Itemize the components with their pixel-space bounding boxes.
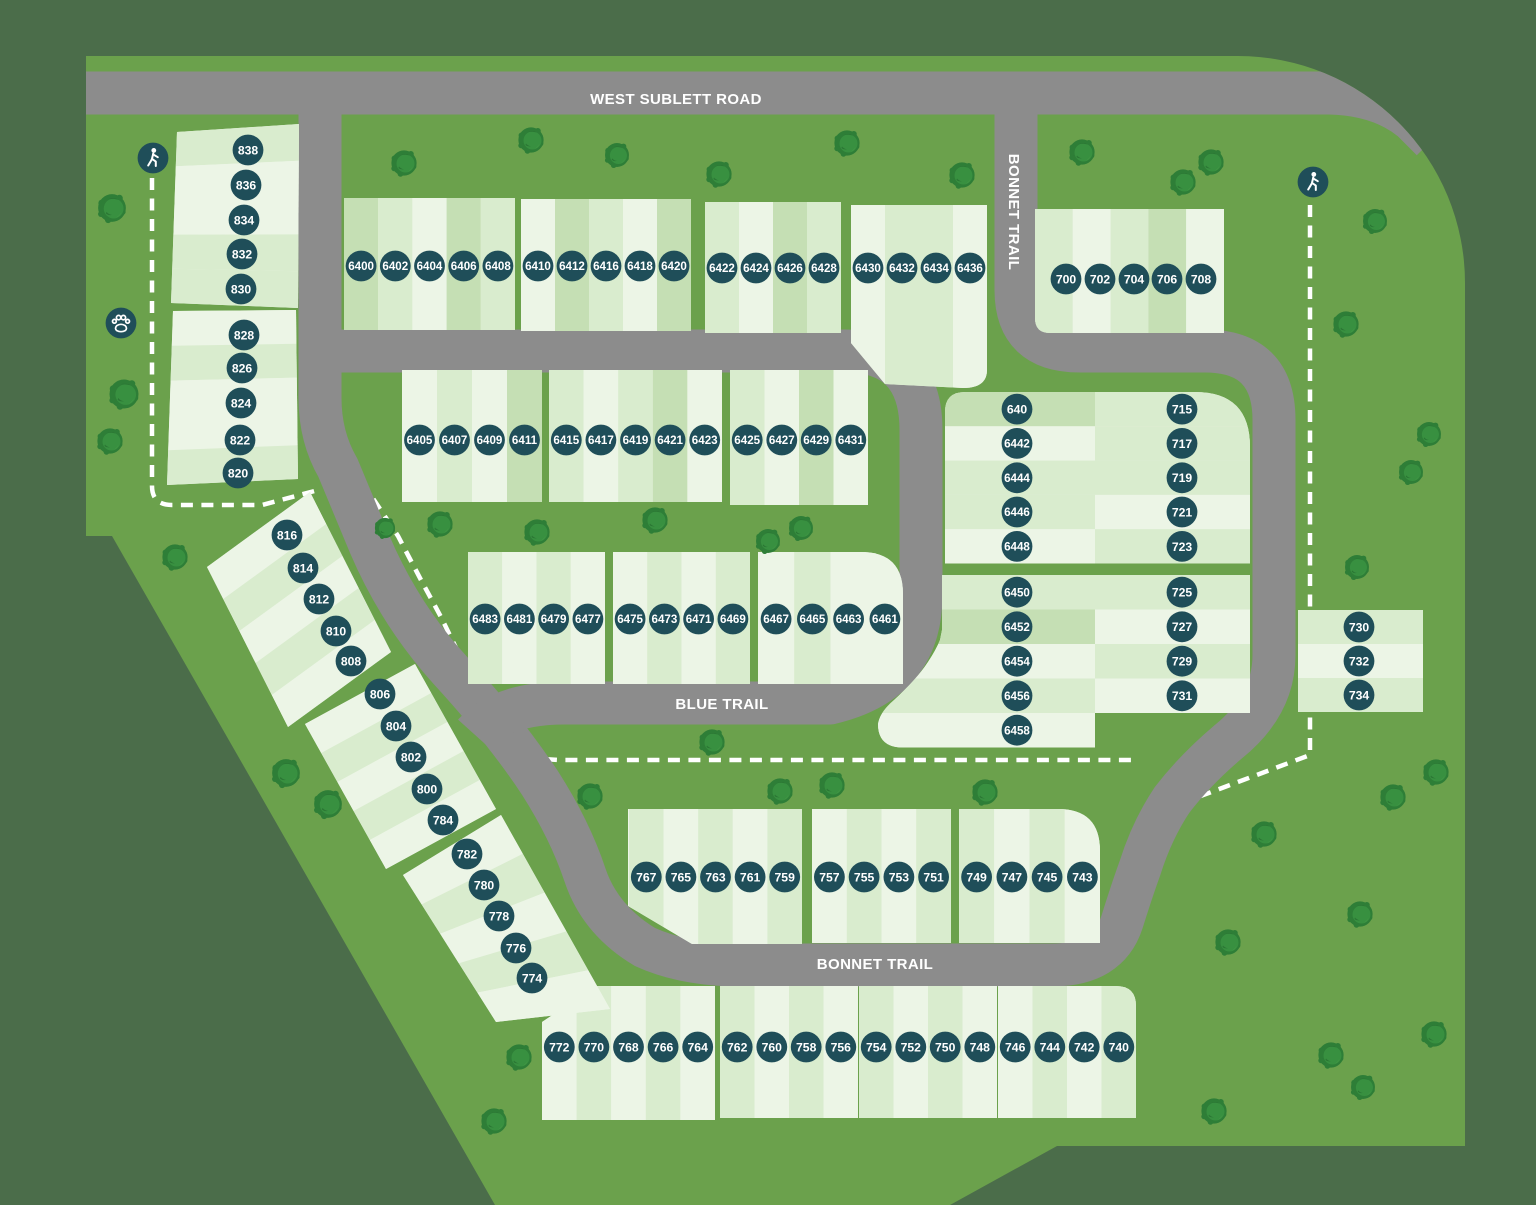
svg-text:6483: 6483 xyxy=(472,613,498,626)
svg-text:749: 749 xyxy=(966,870,987,884)
svg-text:780: 780 xyxy=(474,878,495,892)
svg-text:BONNET TRAIL: BONNET TRAIL xyxy=(817,956,933,973)
svg-text:755: 755 xyxy=(854,870,875,884)
svg-text:6422: 6422 xyxy=(709,262,735,275)
svg-text:6479: 6479 xyxy=(541,613,567,626)
svg-text:729: 729 xyxy=(1172,655,1193,669)
svg-text:6406: 6406 xyxy=(451,260,477,273)
svg-text:838: 838 xyxy=(238,143,259,157)
svg-text:816: 816 xyxy=(277,528,298,542)
svg-text:836: 836 xyxy=(236,178,257,192)
svg-text:6402: 6402 xyxy=(382,260,408,273)
svg-text:725: 725 xyxy=(1172,586,1193,600)
svg-text:6404: 6404 xyxy=(417,260,443,273)
svg-text:6456: 6456 xyxy=(1004,690,1030,703)
svg-text:6450: 6450 xyxy=(1004,586,1030,599)
svg-text:826: 826 xyxy=(232,361,253,375)
svg-text:740: 740 xyxy=(1109,1040,1130,1054)
svg-text:721: 721 xyxy=(1172,505,1193,519)
svg-text:6473: 6473 xyxy=(652,613,678,626)
svg-text:802: 802 xyxy=(401,750,422,764)
svg-text:730: 730 xyxy=(1349,620,1370,634)
svg-text:748: 748 xyxy=(970,1040,991,1054)
svg-text:BLUE TRAIL: BLUE TRAIL xyxy=(675,696,768,713)
svg-text:6419: 6419 xyxy=(623,434,649,447)
svg-text:704: 704 xyxy=(1124,272,1145,286)
svg-text:6426: 6426 xyxy=(777,262,803,275)
svg-text:753: 753 xyxy=(889,870,910,884)
svg-text:768: 768 xyxy=(618,1040,639,1054)
svg-text:BONNET TRAIL: BONNET TRAIL xyxy=(1005,154,1022,270)
svg-text:734: 734 xyxy=(1349,688,1370,702)
svg-text:761: 761 xyxy=(740,870,761,884)
svg-text:6431: 6431 xyxy=(838,434,864,447)
svg-text:828: 828 xyxy=(234,328,255,342)
svg-text:WEST SUBLETT ROAD: WEST SUBLETT ROAD xyxy=(590,91,762,108)
svg-text:770: 770 xyxy=(584,1040,605,1054)
svg-text:812: 812 xyxy=(309,592,330,606)
svg-text:6405: 6405 xyxy=(407,434,433,447)
svg-text:6442: 6442 xyxy=(1004,438,1030,451)
svg-text:6477: 6477 xyxy=(575,613,601,626)
svg-text:6432: 6432 xyxy=(889,262,915,275)
svg-text:745: 745 xyxy=(1037,870,1058,884)
svg-text:6417: 6417 xyxy=(588,434,614,447)
svg-text:814: 814 xyxy=(293,561,314,575)
svg-text:708: 708 xyxy=(1191,272,1212,286)
svg-text:6452: 6452 xyxy=(1004,621,1030,634)
svg-text:6400: 6400 xyxy=(348,260,374,273)
svg-text:6409: 6409 xyxy=(477,434,503,447)
svg-text:766: 766 xyxy=(653,1040,674,1054)
svg-text:751: 751 xyxy=(923,870,944,884)
svg-text:731: 731 xyxy=(1172,689,1193,703)
svg-text:6469: 6469 xyxy=(720,613,746,626)
svg-text:6427: 6427 xyxy=(769,434,795,447)
svg-text:762: 762 xyxy=(727,1040,748,1054)
svg-text:6416: 6416 xyxy=(593,260,619,273)
svg-text:824: 824 xyxy=(231,396,252,410)
svg-text:810: 810 xyxy=(326,624,347,638)
svg-text:6454: 6454 xyxy=(1004,655,1030,668)
svg-text:6465: 6465 xyxy=(800,613,826,626)
svg-text:782: 782 xyxy=(457,847,478,861)
svg-text:6420: 6420 xyxy=(661,260,687,273)
svg-text:6463: 6463 xyxy=(836,613,862,626)
svg-text:6421: 6421 xyxy=(657,434,683,447)
svg-text:778: 778 xyxy=(489,909,510,923)
svg-text:758: 758 xyxy=(796,1040,817,1054)
svg-text:6430: 6430 xyxy=(855,262,881,275)
svg-text:808: 808 xyxy=(341,654,362,668)
svg-text:6475: 6475 xyxy=(617,613,643,626)
svg-text:820: 820 xyxy=(228,466,249,480)
svg-text:6444: 6444 xyxy=(1004,472,1030,485)
svg-text:763: 763 xyxy=(705,870,726,884)
svg-text:784: 784 xyxy=(433,813,454,827)
svg-text:700: 700 xyxy=(1056,272,1077,286)
svg-text:6434: 6434 xyxy=(923,262,949,275)
svg-text:702: 702 xyxy=(1090,272,1111,286)
svg-text:834: 834 xyxy=(234,213,255,227)
svg-text:732: 732 xyxy=(1349,654,1370,668)
svg-text:765: 765 xyxy=(671,870,692,884)
svg-text:806: 806 xyxy=(370,687,391,701)
svg-text:6418: 6418 xyxy=(627,260,653,273)
svg-text:719: 719 xyxy=(1172,471,1193,485)
svg-text:830: 830 xyxy=(231,282,252,296)
svg-text:6425: 6425 xyxy=(734,434,760,447)
svg-text:776: 776 xyxy=(506,941,527,955)
svg-text:759: 759 xyxy=(775,870,796,884)
svg-text:800: 800 xyxy=(417,782,438,796)
svg-text:832: 832 xyxy=(232,247,253,261)
svg-text:746: 746 xyxy=(1005,1040,1026,1054)
svg-text:6467: 6467 xyxy=(763,613,789,626)
svg-text:742: 742 xyxy=(1074,1040,1095,1054)
svg-text:743: 743 xyxy=(1072,870,1093,884)
svg-text:750: 750 xyxy=(935,1040,956,1054)
svg-text:6446: 6446 xyxy=(1004,506,1030,519)
svg-text:706: 706 xyxy=(1157,272,1178,286)
svg-text:6408: 6408 xyxy=(485,260,511,273)
svg-text:6407: 6407 xyxy=(442,434,468,447)
svg-text:767: 767 xyxy=(636,870,657,884)
svg-text:6415: 6415 xyxy=(553,434,579,447)
svg-text:754: 754 xyxy=(866,1040,887,1054)
svg-text:6448: 6448 xyxy=(1004,541,1030,554)
svg-text:6410: 6410 xyxy=(525,260,551,273)
svg-text:723: 723 xyxy=(1172,540,1193,554)
svg-text:640: 640 xyxy=(1007,402,1028,416)
svg-text:6411: 6411 xyxy=(512,434,538,447)
svg-text:727: 727 xyxy=(1172,620,1193,634)
svg-text:774: 774 xyxy=(522,971,543,985)
svg-text:6461: 6461 xyxy=(872,613,898,626)
svg-text:757: 757 xyxy=(819,870,840,884)
svg-text:715: 715 xyxy=(1172,402,1193,416)
svg-text:752: 752 xyxy=(901,1040,922,1054)
svg-text:747: 747 xyxy=(1002,870,1023,884)
svg-text:760: 760 xyxy=(762,1040,783,1054)
svg-text:764: 764 xyxy=(688,1040,709,1054)
svg-text:6471: 6471 xyxy=(686,613,712,626)
svg-text:6436: 6436 xyxy=(957,262,983,275)
svg-text:6428: 6428 xyxy=(811,262,837,275)
svg-text:717: 717 xyxy=(1172,437,1193,451)
svg-text:6481: 6481 xyxy=(507,613,533,626)
svg-text:6424: 6424 xyxy=(743,262,769,275)
svg-text:6412: 6412 xyxy=(559,260,585,273)
svg-text:6423: 6423 xyxy=(692,434,718,447)
svg-text:822: 822 xyxy=(230,433,251,447)
svg-text:804: 804 xyxy=(386,719,407,733)
svg-text:6458: 6458 xyxy=(1004,724,1030,737)
svg-text:772: 772 xyxy=(549,1040,570,1054)
svg-text:744: 744 xyxy=(1040,1040,1061,1054)
svg-text:756: 756 xyxy=(831,1040,852,1054)
svg-text:6429: 6429 xyxy=(803,434,829,447)
